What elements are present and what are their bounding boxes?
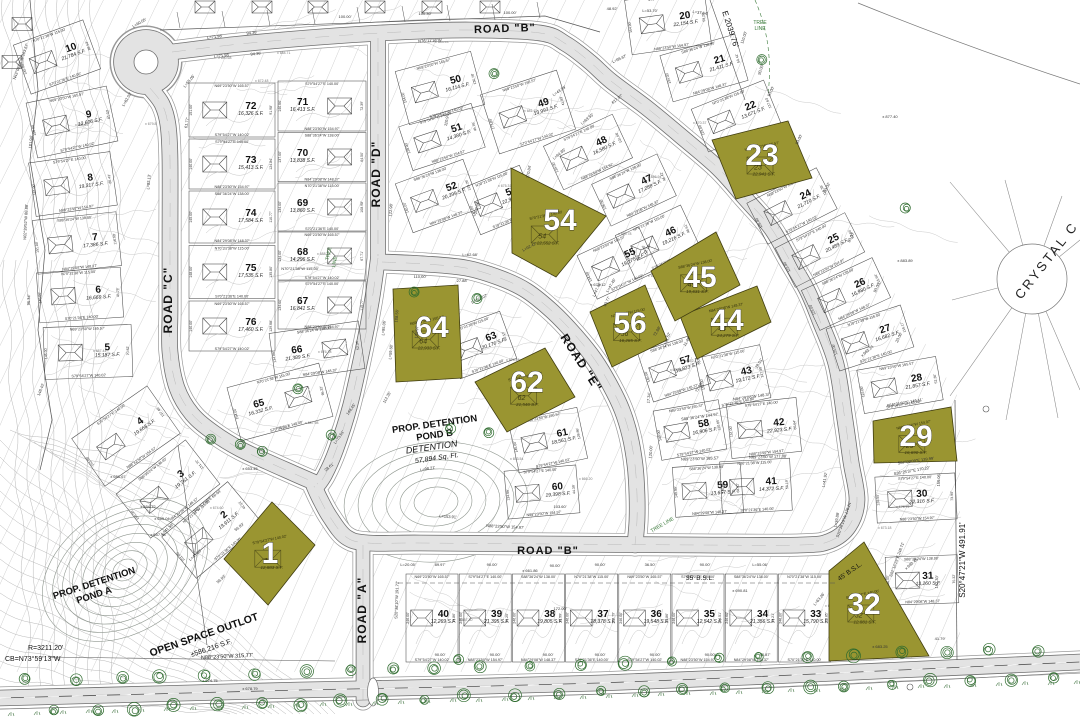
svg-text:L=20.05': L=20.05' (400, 562, 416, 567)
svg-text:246.00': 246.00' (566, 612, 570, 624)
svg-text:S79°54'27"W 140.02': S79°54'27"W 140.02' (627, 658, 662, 662)
svg-text:90.00': 90.00' (543, 652, 554, 657)
svg-text:90.00': 90.00' (705, 652, 716, 657)
svg-text:S79°54'27"W 140.02': S79°54'27"W 140.02' (215, 347, 250, 351)
svg-text:115.77': 115.77' (360, 299, 364, 310)
svg-text:L=62.68': L=62.68' (462, 252, 478, 257)
svg-text:32: 32 (847, 588, 880, 621)
svg-text:N88°23'50"W 154.97': N88°23'50"W 154.97' (305, 127, 340, 131)
svg-text:246.00': 246.00' (778, 612, 782, 624)
svg-text:90.00': 90.00' (595, 652, 606, 657)
svg-text:ROAD "B": ROAD "B" (474, 22, 536, 36)
svg-text:135.80': 135.80' (269, 266, 273, 278)
svg-text:13,860 S.F.: 13,860 S.F. (290, 208, 315, 214)
svg-text:1: 1 (262, 537, 279, 570)
svg-text:S70°21'36"E 140.00': S70°21'36"E 140.00' (788, 658, 822, 662)
svg-text:ROAD "D": ROAD "D" (369, 141, 383, 208)
svg-text:140.00': 140.00' (189, 158, 193, 170)
svg-text:246.00': 246.00' (512, 612, 516, 624)
svg-text:73.94': 73.94' (950, 491, 955, 501)
svg-text:140.00': 140.00' (189, 320, 193, 332)
svg-text:N70°21'38"W 115.00': N70°21'38"W 115.00' (305, 184, 340, 188)
svg-text:L=55.06': L=55.06' (752, 562, 768, 567)
svg-text:44.39': 44.39' (571, 484, 576, 494)
svg-text:151.00': 151.00' (189, 104, 193, 116)
svg-text:S79°54'27"E 140.00': S79°54'27"E 140.00' (305, 282, 339, 286)
svg-text:N70°21'38"W 115.00': N70°21'38"W 115.00' (215, 247, 250, 251)
svg-text:13,838 S.F.: 13,838 S.F. (290, 158, 315, 164)
svg-text:x 678.79: x 678.79 (242, 686, 258, 691)
svg-text:14,296 S.F.: 14,296 S.F. (290, 257, 315, 263)
svg-text:44: 44 (710, 304, 744, 337)
svg-text:50.86': 50.86' (665, 613, 669, 623)
svg-text:96.25': 96.25' (505, 613, 509, 623)
svg-text:17,535 S.F.: 17,535 S.F. (238, 273, 263, 279)
svg-text:58.19': 58.19' (785, 479, 790, 489)
svg-text:246.00': 246.00' (459, 612, 463, 624)
svg-text:x 690.81: x 690.81 (732, 588, 748, 593)
svg-text:72.39': 72.39' (360, 101, 364, 111)
svg-text:140.00': 140.00' (278, 100, 282, 112)
svg-text:x 655.04: x 655.04 (154, 516, 170, 521)
svg-text:108.98': 108.98' (360, 201, 364, 213)
svg-text:246.00': 246.00' (619, 612, 623, 624)
svg-text:56: 56 (613, 307, 646, 340)
svg-text:LINE: LINE (754, 26, 766, 32)
svg-text:145.00': 145.00' (721, 482, 726, 494)
svg-text:N69°23'50"W 165.57': N69°23'50"W 165.57' (415, 575, 450, 579)
svg-text:S79°54'27"W 140.02': S79°54'27"W 140.02' (305, 276, 340, 280)
svg-text:x 670.37: x 670.37 (693, 121, 706, 125)
svg-text:90.00': 90.00' (490, 652, 501, 657)
svg-text:N69°23'50"W 165.57': N69°23'50"W 165.57' (627, 575, 662, 579)
svg-text:110.00': 110.00' (414, 274, 427, 279)
svg-text:64.50': 64.50' (360, 152, 364, 162)
svg-text:17,584 S.F.: 17,584 S.F. (238, 218, 263, 224)
svg-text:15,413 S.F.: 15,413 S.F. (238, 165, 263, 171)
svg-text:79.86': 79.86' (452, 613, 456, 623)
svg-text:129.68': 129.68' (269, 320, 273, 332)
svg-text:x 673.18: x 673.18 (878, 526, 891, 530)
svg-text:62: 62 (510, 366, 543, 399)
svg-text:16,413 S.F.: 16,413 S.F. (290, 107, 315, 113)
svg-text:ROAD "C": ROAD "C" (161, 267, 175, 334)
svg-text:246.00': 246.00' (406, 612, 410, 624)
svg-text:N84°29'08"W 148.37': N84°29'08"W 148.37' (521, 658, 556, 662)
svg-text:36.50': 36.50' (645, 562, 656, 567)
svg-text:162.30': 162.30' (934, 575, 939, 588)
svg-text:S88°36'24"W 138.00': S88°36'24"W 138.00' (521, 575, 556, 579)
svg-text:17,460 S.F.: 17,460 S.F. (238, 327, 263, 333)
svg-text:104.79': 104.79' (612, 612, 616, 624)
svg-text:S79°54'27"W 140.02': S79°54'27"W 140.02' (415, 658, 450, 662)
svg-text:23: 23 (745, 139, 778, 172)
svg-text:113.85': 113.85' (824, 612, 828, 623)
svg-text:x 883.89: x 883.89 (897, 258, 913, 263)
svg-text:100.00': 100.00' (339, 14, 352, 19)
svg-text:246.00': 246.00' (672, 612, 676, 624)
svg-text:16,326 S.F.: 16,326 S.F. (238, 111, 263, 117)
svg-text:S79°54'27"E 140.00': S79°54'27"E 140.00' (215, 140, 249, 144)
svg-text:48.92': 48.92' (607, 6, 618, 11)
svg-text:R=3211.20': R=3211.20' (28, 645, 63, 652)
svg-text:N70°21'38"W 115.00': N70°21'38"W 115.00' (574, 575, 609, 579)
svg-text:103.60': 103.60' (554, 504, 567, 509)
svg-text:N70°21'38"W 115.00': N70°21'38"W 115.00' (787, 575, 822, 579)
svg-text:N84°29'08"W 148.37': N84°29'08"W 148.37' (305, 177, 340, 181)
svg-text:43.21': 43.21' (771, 613, 775, 623)
svg-text:ROAD "A": ROAD "A" (355, 577, 369, 644)
svg-text:N70°21'38"W 115.00': N70°21'38"W 115.00' (281, 266, 319, 271)
svg-text:N84°29'08"W 148.37': N84°29'08"W 148.37' (734, 658, 769, 662)
svg-text:S79°54'27"E 140.00': S79°54'27"E 140.00' (305, 82, 339, 86)
svg-text:128.00': 128.00' (876, 494, 881, 506)
svg-text:145.00': 145.00' (44, 347, 48, 359)
svg-text:67.71': 67.71' (360, 251, 364, 261)
svg-text:100.30': 100.30' (419, 11, 432, 16)
svg-text:S70°21'36"E 140.00': S70°21'36"E 140.00' (305, 227, 339, 231)
svg-text:41.79': 41.79' (935, 636, 946, 641)
svg-text:27.88': 27.88' (457, 278, 468, 283)
svg-text:29: 29 (899, 420, 932, 453)
svg-text:90.00': 90.00' (487, 562, 498, 567)
svg-text:90.00': 90.00' (550, 563, 561, 568)
svg-text:N88°23'50"W 154.97': N88°23'50"W 154.97' (468, 658, 503, 662)
svg-text:124.84': 124.84' (269, 158, 273, 170)
svg-text:134.00': 134.00' (278, 250, 282, 262)
svg-text:x 654.72: x 654.72 (140, 504, 156, 509)
svg-text:140.00': 140.00' (38, 292, 43, 304)
svg-text:x 661.86: x 661.86 (522, 568, 538, 573)
svg-text:21,546 S.F.: 21,546 S.F. (515, 402, 539, 407)
svg-text:S88°36'24"W 138.00': S88°36'24"W 138.00' (305, 134, 340, 138)
svg-text:68.92': 68.92' (736, 483, 741, 493)
svg-text:134.00': 134.00' (278, 299, 282, 311)
svg-text:54: 54 (543, 204, 577, 237)
svg-text:148.00': 148.00' (189, 266, 193, 278)
svg-text:22,552 S.F.: 22,552 S.F. (536, 241, 560, 246)
svg-text:35' B.S.L.: 35' B.S.L. (686, 575, 714, 582)
svg-text:x 683.25: x 683.25 (872, 644, 888, 649)
svg-text:15,187 S.F.: 15,187 S.F. (95, 352, 121, 359)
svg-text:17.34': 17.34' (646, 392, 652, 403)
svg-text:90.00': 90.00' (435, 652, 446, 657)
svg-text:S88°36'24"W 138.00': S88°36'24"W 138.00' (734, 575, 769, 579)
svg-text:110.77': 110.77' (269, 211, 273, 222)
svg-text:N88°23'50"W 154.97': N88°23'50"W 154.97' (215, 185, 250, 189)
svg-text:x 877.40: x 877.40 (882, 114, 898, 119)
svg-text:22,933 S.F.: 22,933 S.F. (417, 346, 441, 351)
svg-text:64: 64 (415, 311, 449, 344)
svg-text:S20°47'21"W 491.91': S20°47'21"W 491.91' (958, 522, 967, 598)
svg-text:89.97': 89.97' (435, 562, 446, 567)
svg-text:x 674.12: x 674.12 (590, 282, 606, 287)
svg-text:96.34': 96.34' (26, 294, 31, 305)
svg-text:S88°36'24"W 138.00': S88°36'24"W 138.00' (215, 192, 250, 196)
svg-text:N88°23'50"W 154.97': N88°23'50"W 154.97' (681, 658, 716, 662)
svg-text:x 651.67: x 651.67 (110, 474, 126, 479)
svg-text:16,841 S.F.: 16,841 S.F. (290, 306, 315, 312)
svg-text:90.00': 90.00' (700, 562, 711, 567)
svg-text:x 666.20: x 666.20 (579, 477, 592, 481)
svg-text:145.00': 145.00' (189, 211, 193, 223)
svg-text:x 653.45: x 653.45 (242, 466, 258, 471)
svg-text:45: 45 (683, 261, 716, 294)
svg-text:N69°23'50"W 165.57': N69°23'50"W 165.57' (305, 233, 340, 237)
svg-text:N69°23'50"W 165.57': N69°23'50"W 165.57' (215, 302, 250, 306)
svg-text:L=53.70': L=53.70' (642, 8, 658, 13)
svg-text:N84°29'08"W 148.37': N84°29'08"W 148.37' (215, 239, 250, 243)
svg-text:ROAD "B": ROAD "B" (517, 545, 579, 557)
svg-text:134.51': 134.51' (718, 612, 722, 624)
svg-text:172.00': 172.00' (554, 606, 567, 611)
svg-text:78.99': 78.99' (558, 613, 562, 623)
svg-text:137.00': 137.00' (278, 151, 282, 163)
svg-text:S70°21'36"E 140.00': S70°21'36"E 140.00' (215, 294, 249, 298)
svg-text:41.76': 41.76' (116, 287, 121, 297)
svg-text:90.00': 90.00' (595, 562, 606, 567)
svg-text:L=153.91': L=153.91' (439, 514, 457, 520)
svg-text:246.00': 246.00' (725, 612, 729, 624)
svg-text:70.62': 70.62' (126, 345, 130, 355)
svg-text:22,941 S.F.: 22,941 S.F. (752, 172, 776, 177)
svg-text:x 672.48: x 672.48 (255, 79, 268, 83)
svg-text:S79°54'27"W 140.02': S79°54'27"W 140.02' (215, 133, 250, 137)
svg-text:90.00': 90.00' (650, 652, 661, 657)
svg-text:70.32': 70.32' (952, 574, 956, 584)
svg-text:CB=N73°59'13"W: CB=N73°59'13"W (5, 655, 61, 663)
svg-text:N69°23'50"W 165.57': N69°23'50"W 165.57' (215, 84, 250, 88)
svg-text:100.00': 100.00' (504, 10, 517, 15)
svg-text:134.00': 134.00' (278, 201, 282, 213)
svg-text:140.00': 140.00' (674, 486, 679, 498)
svg-text:91.98': 91.98' (269, 105, 273, 115)
svg-text:156.06': 156.06' (936, 473, 941, 486)
svg-text:S79°54'27"E 140.00': S79°54'27"E 140.00' (468, 575, 502, 579)
